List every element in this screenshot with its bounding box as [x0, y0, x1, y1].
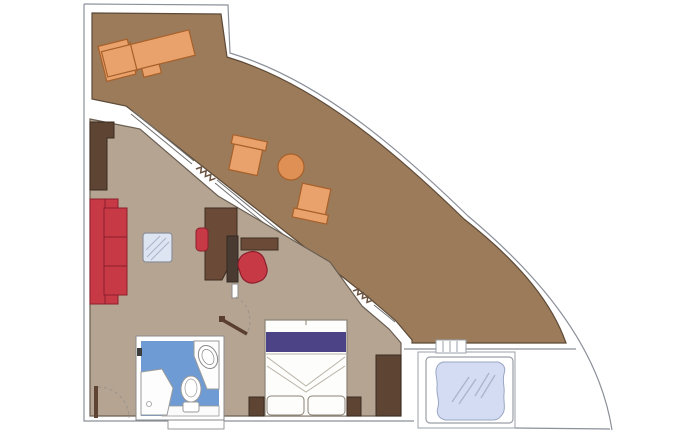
tv-cabinet — [227, 236, 238, 282]
sofa-backrest — [90, 199, 105, 304]
sofa-seats — [104, 208, 127, 295]
pillow-right — [308, 396, 345, 415]
nightstand-right — [347, 397, 361, 416]
bedroom-door-hinge — [219, 316, 225, 322]
double-bed — [265, 320, 347, 416]
bed-runner — [266, 332, 346, 352]
glass-coffee-table — [143, 233, 172, 262]
suite-floorplan — [0, 0, 700, 433]
sofa — [90, 199, 127, 304]
round-table — [278, 154, 304, 180]
deck-chair-1-seat — [229, 144, 263, 175]
bathroom — [136, 336, 224, 429]
toilet — [181, 376, 201, 412]
whirlpool-deck — [418, 340, 515, 428]
whirlpool-water — [436, 362, 505, 420]
pillow-left — [267, 396, 304, 415]
console-shelf — [241, 238, 278, 250]
bathroom-door-pivot — [137, 348, 142, 356]
entry-door-leaf — [94, 386, 98, 418]
desk-chair — [196, 228, 208, 251]
floorplan-canvas — [0, 0, 700, 433]
steps — [436, 340, 466, 353]
wardrobe — [376, 355, 401, 416]
bedroom-door-jamb — [232, 284, 238, 298]
nightstand-left — [249, 397, 264, 416]
